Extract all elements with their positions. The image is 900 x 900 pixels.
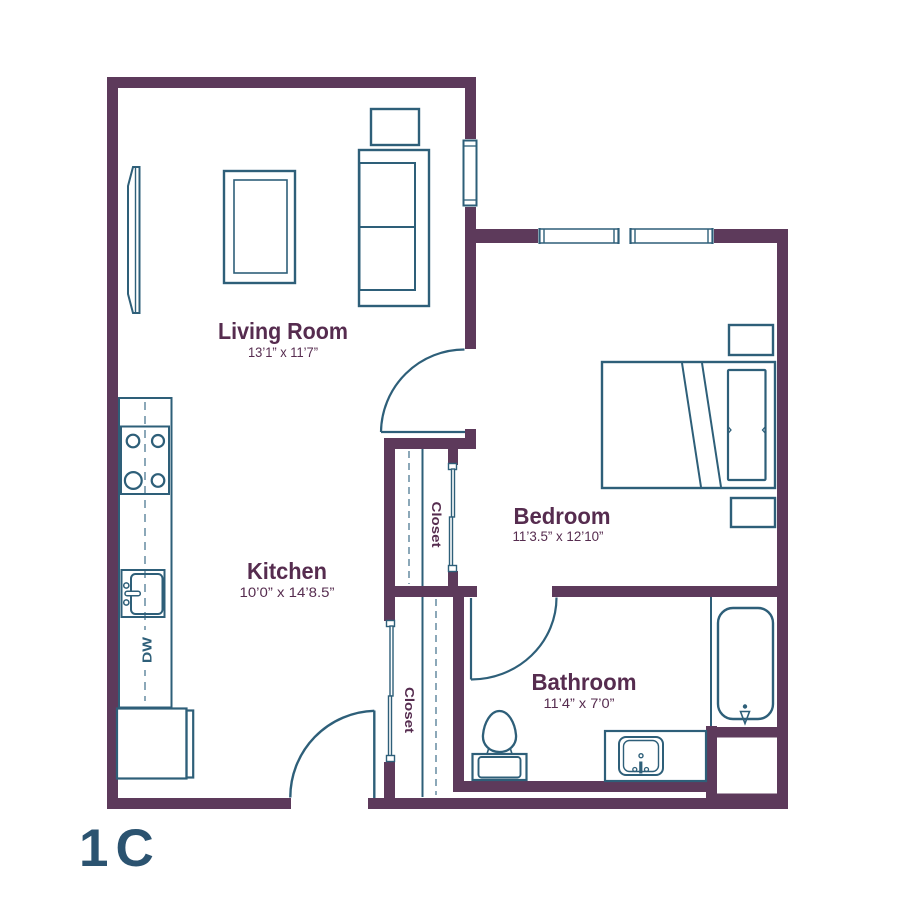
svg-text:11’4” x 7’0”: 11’4” x 7’0”	[544, 696, 615, 711]
svg-text:Kitchen: Kitchen	[247, 558, 327, 584]
svg-text:Bathroom: Bathroom	[532, 669, 637, 695]
svg-text:Closet: Closet	[402, 687, 417, 734]
svg-text:DW: DW	[140, 636, 155, 663]
svg-text:10’0” x 14’8.5”: 10’0” x 14’8.5”	[240, 585, 335, 600]
svg-text:1C: 1C	[79, 819, 161, 878]
svg-text:Living Room: Living Room	[218, 318, 348, 344]
svg-text:13’1” x 11’7”: 13’1” x 11’7”	[248, 345, 318, 360]
svg-text:Closet: Closet	[429, 502, 444, 549]
svg-text:Bedroom: Bedroom	[514, 503, 611, 529]
svg-text:11’3.5” x 12’10”: 11’3.5” x 12’10”	[513, 529, 604, 544]
